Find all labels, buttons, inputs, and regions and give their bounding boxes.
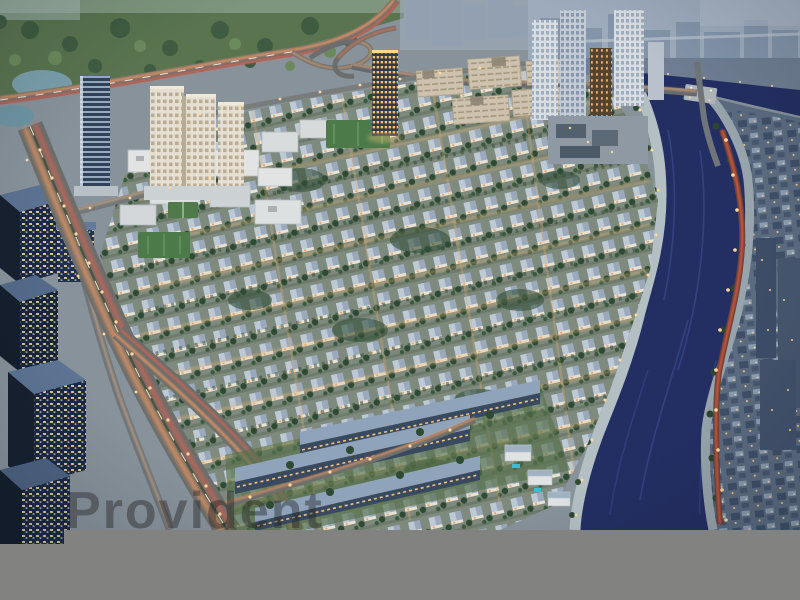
- gray-bar-bottom: [0, 544, 800, 600]
- render-canvas: Provident: [0, 0, 800, 600]
- aerial-render-stage: Provident: [0, 0, 800, 600]
